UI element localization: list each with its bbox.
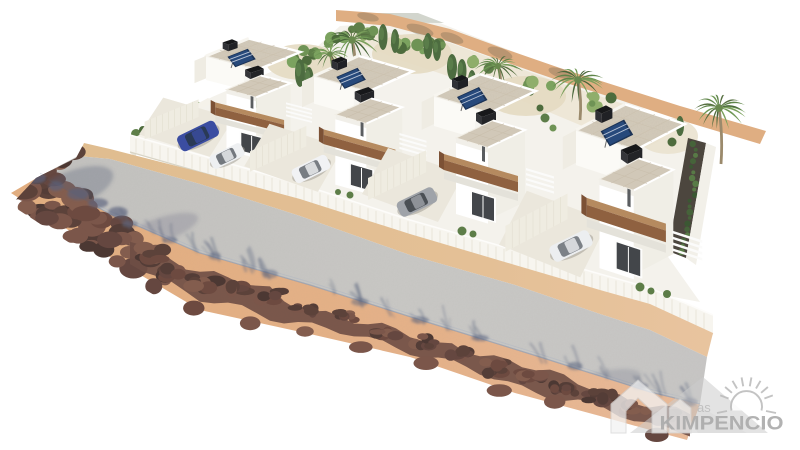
svg-text:KIMPENCIO: KIMPENCIO (660, 414, 784, 435)
